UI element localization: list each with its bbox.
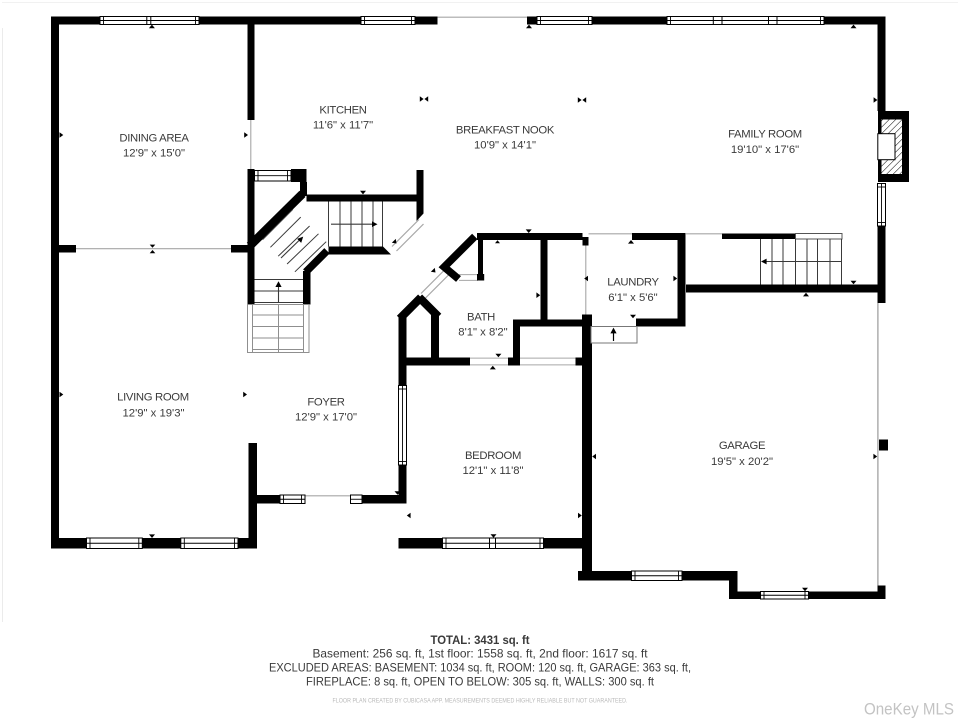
svg-text:FAMILY ROOM: FAMILY ROOM xyxy=(728,129,802,141)
svg-text:BATH: BATH xyxy=(467,312,495,324)
svg-text:10'9" x 14'1": 10'9" x 14'1" xyxy=(474,139,536,151)
svg-text:19'10" x 17'6": 19'10" x 17'6" xyxy=(731,144,799,156)
svg-text:12'1" x 11'8": 12'1" x 11'8" xyxy=(462,465,523,477)
svg-text:BEDROOM: BEDROOM xyxy=(465,450,521,462)
svg-text:19'5" x 20'2": 19'5" x 20'2" xyxy=(711,456,773,468)
svg-text:8'1" x 8'2": 8'1" x 8'2" xyxy=(458,326,507,338)
svg-text:KITCHEN: KITCHEN xyxy=(319,105,366,117)
svg-text:12'9" x 19'3": 12'9" x 19'3" xyxy=(123,407,185,419)
svg-text:12'9" x 17'0": 12'9" x 17'0" xyxy=(295,411,357,423)
svg-text:EXCLUDED AREAS: BASEMENT: 1034: EXCLUDED AREAS: BASEMENT: 1034 sq. ft, R… xyxy=(269,662,691,675)
svg-text:Basement: 256 sq. ft, 1st floo: Basement: 256 sq. ft, 1st floor: 1558 sq… xyxy=(313,647,649,660)
svg-text:GARAGE: GARAGE xyxy=(719,440,766,452)
svg-text:TOTAL: 3431 sq. ft: TOTAL: 3431 sq. ft xyxy=(431,634,530,647)
svg-text:OneKey MLS: OneKey MLS xyxy=(864,700,954,719)
svg-text:LAUNDRY: LAUNDRY xyxy=(607,277,659,289)
svg-text:FOYER: FOYER xyxy=(307,396,344,408)
svg-text:FLOOR PLAN CREATED BY CUBICASA: FLOOR PLAN CREATED BY CUBICASA APP. MEAS… xyxy=(333,698,628,705)
svg-text:6'1" x 5'6": 6'1" x 5'6" xyxy=(608,292,657,304)
svg-text:DINING AREA: DINING AREA xyxy=(119,133,189,145)
svg-text:11'6" x 11'7": 11'6" x 11'7" xyxy=(313,120,373,132)
svg-text:12'9" x 15'0": 12'9" x 15'0" xyxy=(123,147,185,159)
svg-text:BREAKFAST NOOK: BREAKFAST NOOK xyxy=(456,124,555,136)
svg-text:FIREPLACE: 8 sq. ft, OPEN TO B: FIREPLACE: 8 sq. ft, OPEN TO BELOW: 305 … xyxy=(306,675,655,688)
svg-text:LIVING ROOM: LIVING ROOM xyxy=(117,392,189,404)
